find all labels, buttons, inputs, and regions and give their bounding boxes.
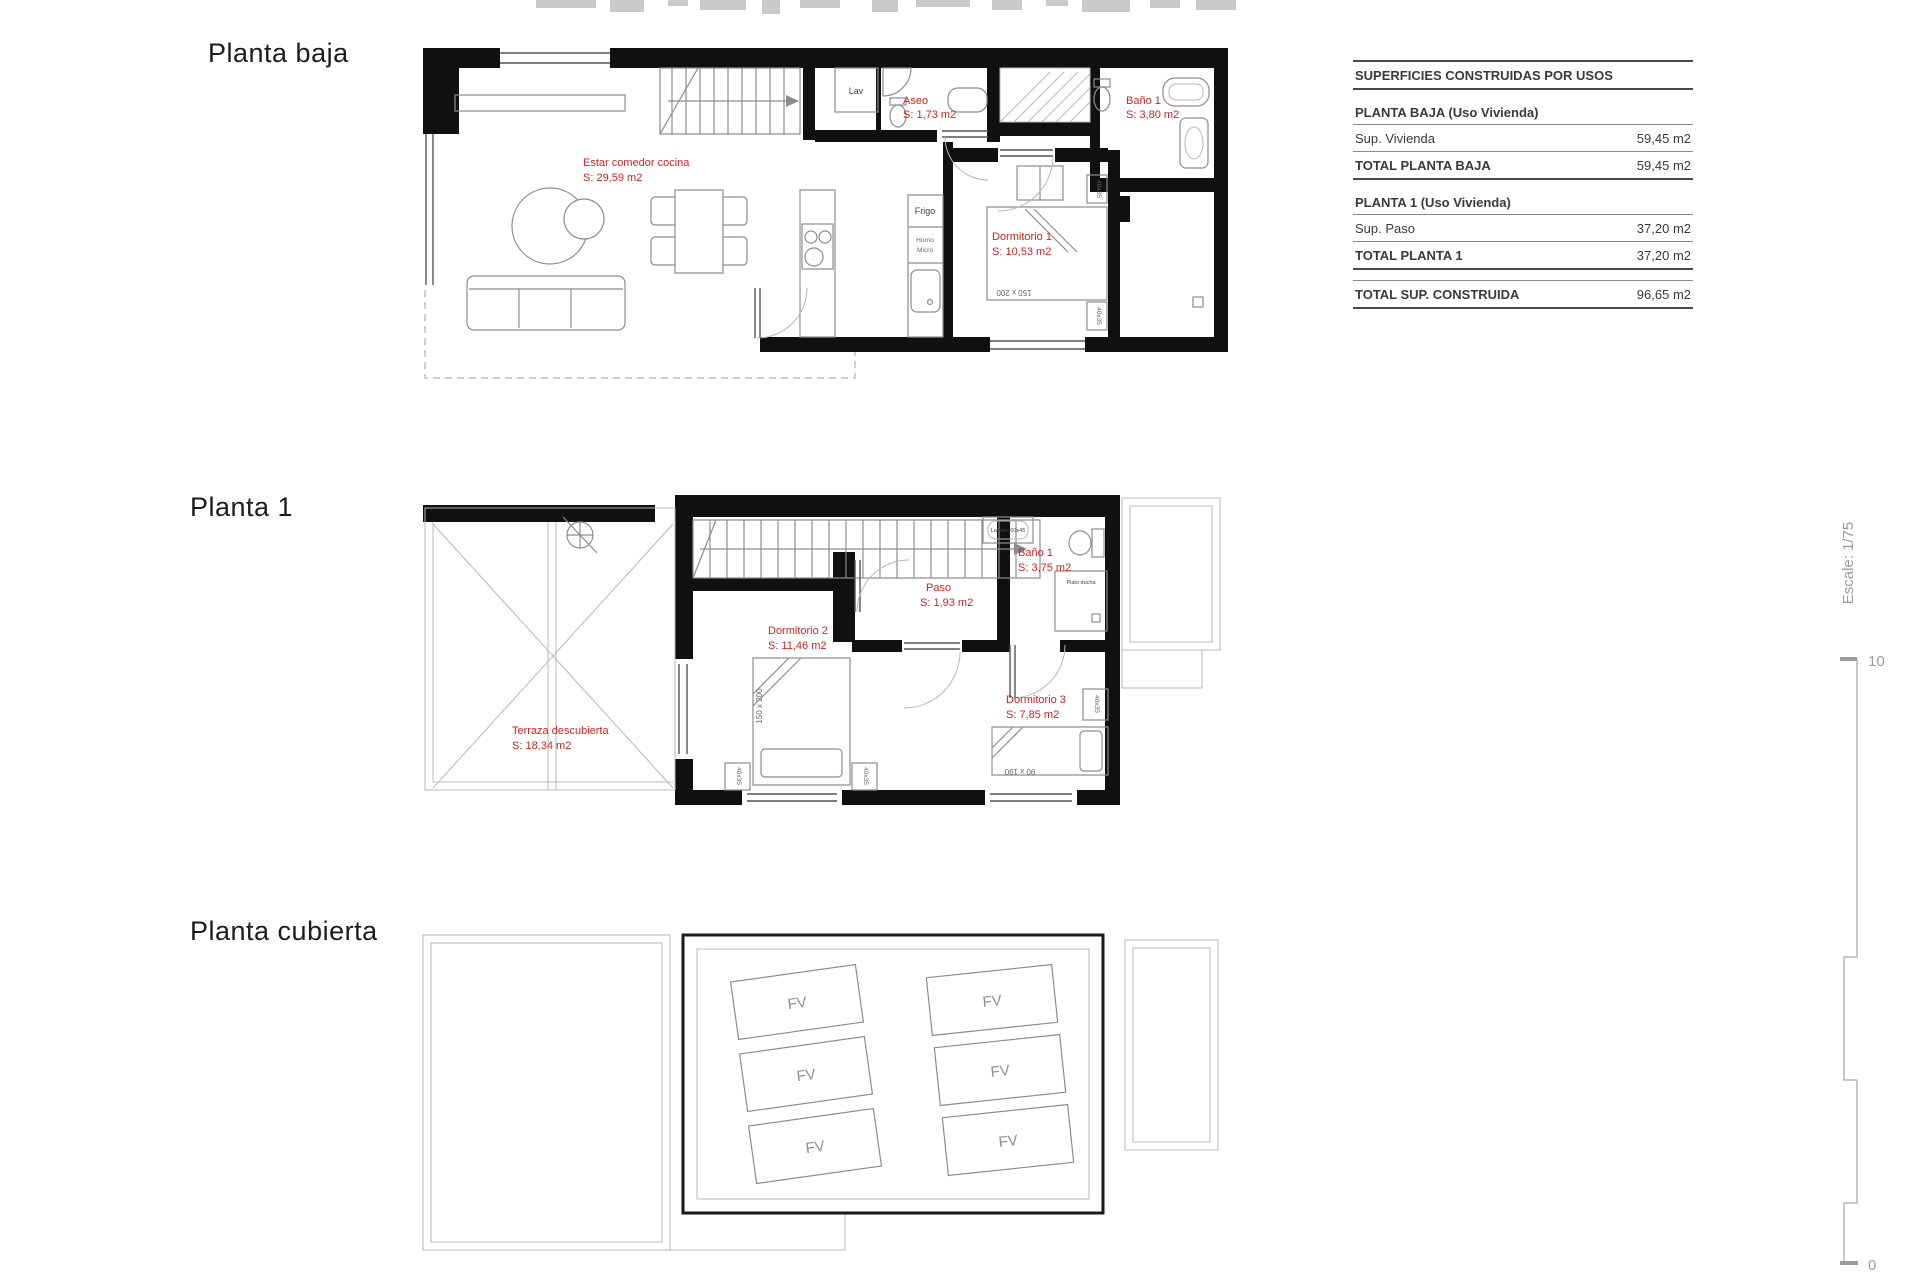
- main-roof-outline: [683, 935, 1103, 1213]
- lower-roof-inner-line: [431, 943, 662, 1242]
- dining-table: [651, 190, 747, 273]
- room-area-paso: S: 1,93 m2: [920, 597, 973, 609]
- scale-bottom-value: 0: [1868, 1257, 1876, 1274]
- nightstand-size-label: 40x35: [862, 767, 869, 785]
- room-area-bano1: S: 3,75 m2: [1018, 562, 1071, 574]
- lounge-armchairs: [512, 188, 604, 264]
- shower-label: Plato ducha: [1066, 580, 1096, 586]
- room-label-dormitorio1: Dormitorio 1: [992, 231, 1052, 243]
- room-area-estar: S: 29,59 m2: [583, 172, 642, 184]
- solar-panel-label: FV: [805, 1138, 826, 1158]
- solar-panel-label: FV: [787, 994, 808, 1014]
- scale-bar-line: [1844, 660, 1857, 1263]
- nightstand-size-label: 40x35: [1095, 307, 1102, 325]
- sideboard: [455, 95, 625, 111]
- scale-label: Escale: 1/75: [1840, 522, 1857, 605]
- room-label-terraza: Terraza descubierta: [512, 725, 609, 737]
- fridge-label: Frigo: [915, 206, 936, 216]
- bed-size-label: 150 x 200: [755, 688, 764, 724]
- solar-panel-label: FV: [998, 1132, 1019, 1151]
- scale-top-value: 10: [1868, 653, 1885, 670]
- lower-roof-outline: [423, 935, 670, 1250]
- room-area-dormitorio3: S: 7,85 m2: [1006, 709, 1059, 721]
- micro-label: Micro: [917, 247, 933, 254]
- room-label-dormitorio3: Dormitorio 3: [1006, 694, 1066, 706]
- bed-size-label: 90 x 190: [1004, 767, 1035, 776]
- room-label-bano1: Baño 1: [1018, 547, 1053, 559]
- room-label-dormitorio2: Dormitorio 2: [768, 625, 828, 637]
- laundry-label: Lav: [849, 86, 864, 96]
- roof-overhang-right: [1122, 498, 1220, 688]
- bed-size-label: 150 x 200: [996, 288, 1032, 297]
- right-roof-inner-line: [1133, 948, 1210, 1142]
- architectural-drawing-sheet: Planta baja Planta 1 Planta cubierta SUP…: [0, 0, 1920, 1280]
- dormitorio2-furniture: 150 x 200 40x35 40x35: [725, 658, 877, 790]
- pillow: [1080, 731, 1102, 771]
- room-area-bano1: S: 3,80 m2: [1126, 109, 1179, 121]
- washbasin: [1180, 118, 1208, 168]
- toilet-tank: [1092, 529, 1104, 557]
- toilet-bowl: [1069, 531, 1091, 555]
- room-area-terraza: S: 18,34 m2: [512, 740, 571, 752]
- staircase: [660, 68, 800, 134]
- oven-label: Horno: [916, 237, 934, 244]
- drain-box: [1193, 297, 1203, 307]
- scale-annotation: Escale: 1/75 10 0: [1840, 522, 1885, 1274]
- corner-sink: [883, 68, 911, 96]
- pillow: [761, 749, 842, 777]
- right-roof-outline: [1125, 940, 1218, 1150]
- patio-shaft: [1000, 68, 1090, 122]
- kitchen-counter: [800, 190, 835, 337]
- room-label-bano1: Baño 1: [1126, 95, 1161, 107]
- room-label-aseo: Aseo: [903, 95, 928, 107]
- sofa: [467, 276, 625, 330]
- planta-baja-plan: Frigo Horno Micro Lav: [423, 48, 1228, 378]
- nightstand-size-label: 40x35: [1095, 180, 1102, 198]
- laundry-closet: Lav: [835, 68, 878, 112]
- room-area-aseo: S: 1,73 m2: [903, 109, 956, 121]
- room-label-paso: Paso: [926, 582, 951, 594]
- room-area-dormitorio2: S: 11,46 m2: [768, 640, 827, 652]
- stair-direction-arrow: [786, 95, 799, 107]
- planta-1-plan: Lavabo 60x45 Plato ducha 150 x 200 40x35…: [423, 495, 1220, 805]
- solar-panels: FV FV FV FV FV FV: [731, 965, 1074, 1184]
- bathtub: [1163, 78, 1209, 106]
- main-roof-inner-line: [697, 949, 1089, 1199]
- washbasin-label: Lavabo 60x45: [991, 528, 1026, 534]
- solar-panel-label: FV: [796, 1066, 817, 1086]
- appliance-column: Frigo Horno Micro: [908, 195, 943, 337]
- porch-dashed-outline: [425, 290, 855, 378]
- room-area-dormitorio1: S: 10,53 m2: [992, 246, 1051, 258]
- room-label-estar: Estar comedor cocina: [583, 157, 690, 169]
- solar-panel-label: FV: [982, 992, 1003, 1011]
- nightstand-size-label: 40x35: [1093, 695, 1100, 713]
- plans-canvas: Frigo Horno Micro Lav: [0, 0, 1920, 1280]
- kitchen-sink: [911, 270, 940, 312]
- top-edge-fragments: [536, 0, 1236, 14]
- planta-cubierta-plan: FV FV FV FV FV FV: [423, 935, 1218, 1250]
- nightstand-size-label: 40x35: [735, 767, 742, 785]
- bed: [753, 658, 850, 785]
- doors: [855, 560, 1065, 708]
- solar-panel-label: FV: [990, 1062, 1011, 1081]
- shower-drain: [1092, 614, 1100, 622]
